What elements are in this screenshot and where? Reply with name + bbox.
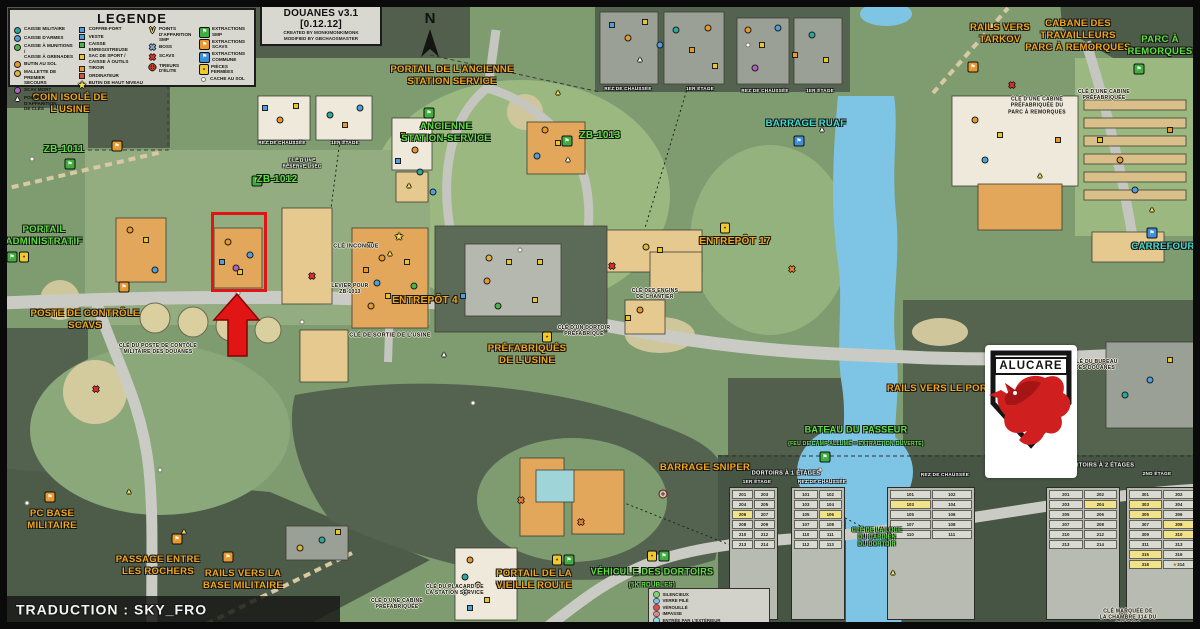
map-label-rails-base-militaire: RAILS VERS LA BASE MILITAIRE	[203, 568, 283, 592]
boss-icon: ✖	[149, 44, 156, 52]
map-label-rails-vers-port: RAILS VERS LE PORT	[887, 383, 993, 395]
dorm-floor-label: DORTOIRS À 1 ÉTAGES	[752, 471, 820, 478]
map-label-prefabriques-usine: PRÉFABRIQUÉS DE L'USINE	[488, 343, 567, 367]
map-label-cle-bureau-douanes: CLÉ DU BUREAU DES DOUANES	[1072, 359, 1117, 372]
map-title-box: DOUANES v3.1 [0.12.12] CREATED BY MONKIM…	[260, 4, 382, 46]
legend-item-label: POINTS D'APPARITION SMP	[159, 26, 196, 43]
map-label-zb-1011: ZB-1011	[44, 144, 84, 157]
map-label-portail-ancienne-station: PORTAIL DE L'ANCIENNE STATION SERVICE	[390, 64, 513, 88]
map-label-zb-1012: ZB-1012	[256, 174, 297, 187]
legend-item: CAISSE ENREGISTREUSE	[78, 41, 145, 52]
map-label-cle-dortoir-prefabrique: CLÉ D'UN DORTOIR PRÉFABRIQUÉ	[558, 325, 611, 338]
legend-item: ★BUTIN DE HAUT NIVEAU	[78, 80, 145, 90]
highlight-arrow-icon	[205, 290, 269, 360]
map-label-traduction: TRADUCTION : SKY_FRO	[16, 601, 207, 619]
pmc-spawn-icon: V	[150, 27, 155, 35]
legend-item: ⚑EXTRACTIONS SCAVS	[199, 39, 251, 51]
map-label-cabane-travailleurs: CABANE DES TRAVAILLEURS PARC À REMORQUES	[1017, 18, 1139, 54]
highlight-rectangle	[211, 212, 267, 292]
legend-item-label: SCAVS	[159, 53, 175, 59]
map-label-cle-poste-controle: CLÉ DU POSTE DE CONTÔLE MILITAIRE DES DO…	[119, 343, 197, 356]
map-label-cle-cabine-prefab-2: CLÉ D'UNE CABINE PRÉFABRIQUÉE	[371, 598, 423, 611]
map-label-rez-chaussee-m1: REZ DE CHAUSSÉE	[604, 86, 651, 92]
scav-x-icon: ✖	[149, 54, 156, 62]
legend-item-label: CAISSE À MUNITIONS / CAISSE À GRENADES	[24, 43, 75, 60]
legend-item-label: SAC DE SPORT / CAISSE À OUTILS	[89, 53, 129, 64]
map-label-passage-rochers: PASSAGE ENTRE LES ROCHERS	[116, 554, 201, 578]
alucare-logo: ALUCARE	[985, 345, 1077, 478]
legend-item-label: TIREURS D'ÉLITE	[159, 63, 196, 74]
legend-item: ⊕TIREURS D'ÉLITE	[148, 63, 196, 74]
legend-box: LEGENDE CAISSE MILITAIRECAISSE D'ARMESCA…	[8, 8, 256, 87]
c-g-circle-icon	[14, 44, 21, 51]
map-credit-modified: MODIFIED BY GBCHAOSMASTER	[263, 36, 379, 42]
sniper-crosshair-icon: ⊕	[149, 63, 157, 72]
s-y-square-icon	[79, 54, 85, 60]
map-label-entrepot-17: ENTREPÔT 17	[699, 236, 771, 249]
rooms-legend-label: SILENCIEUX	[663, 592, 689, 597]
legend-item-label: EXTRACTIONS SMP	[212, 26, 251, 37]
map-label-cle-inconnue: CLÉ INCONNUE	[333, 244, 378, 251]
dorm-floor-label: REZ DE CHAUSSÉE	[798, 479, 846, 485]
map-label-pc-base-militaire: PC BASE MILITAIRE	[27, 508, 77, 532]
rooms-legend-label: IMPASSE	[663, 611, 682, 616]
dorm-floor-label: 1ER ÉTAGE	[743, 479, 771, 485]
ground-cache-icon	[201, 77, 206, 82]
legend-item: BUTIN AU SOL	[13, 61, 75, 69]
map-label-ancienne-station-service: ANCIENNE STATION-SERVICE	[401, 121, 490, 145]
map-label-portail-administratif: PORTAIL ADMINISTRATIF	[5, 224, 82, 248]
legend-item: CAISSE D'ARMES	[13, 35, 75, 43]
dorm-floor-label: 2ND ÉTAGE	[1143, 471, 1172, 477]
rooms-legend-label: VÉROUILLÉ	[663, 605, 688, 610]
extraction-flag-icon: ⚑	[199, 27, 210, 38]
map-title: DOUANES v3.1 [0.12.12]	[263, 8, 379, 30]
legend-item: MALLETTE DE PREMIER SECOURS	[13, 69, 75, 86]
spawn-triangle-icon: ▲	[14, 96, 21, 103]
color-dot-icon	[653, 617, 660, 624]
extraction-flag-icon: ⚑	[199, 52, 210, 63]
map-label-parc-remorques: PARC À REMORQUES	[1128, 34, 1193, 58]
map-label-entrepot-4: ENTREPÔT 4	[392, 295, 458, 308]
map-label-barrage-ruaf: BARRAGE RUAF	[766, 118, 847, 130]
map-label-cle-placard-station: CLÉ DU PLACARD DE LA STATION SERVICE	[426, 584, 484, 597]
legend-item: CAISSE MILITAIRE	[13, 26, 75, 34]
customs-map: 2012032042052062072082092102122132141011…	[0, 0, 1200, 629]
dorm-floor-label: REZ DE CHAUSSÉE	[921, 472, 969, 478]
legend-item: TIROIR	[78, 65, 145, 72]
c-a-circle-icon	[14, 70, 21, 77]
map-label-carrefour: CARREFOUR	[1131, 241, 1194, 253]
legend-item-label: POINTS D'APPARITION DE CLÉS	[24, 95, 75, 112]
legend-item: SAC DE SPORT / CAISSE À OUTILS	[78, 53, 145, 64]
alucare-logo-text: ALUCARE	[994, 357, 1068, 375]
legend-item-label: CAISSE D'ARMES	[24, 35, 63, 41]
c-b-circle-icon	[14, 35, 21, 42]
legend-item: ORDINATEUR	[78, 73, 145, 80]
map-label-vehicule-dortoirs: VÉHICULE DES DORTOIRS	[591, 566, 714, 577]
map-label-premier-etage-m2: 1ER ÉTAGE	[806, 88, 834, 94]
map-label-levier-zb1013: LEVIER POUR ZB-1013	[331, 283, 368, 296]
map-label-cle-cabine-prefab-1: CLÉ D'UNE CABINE PRÉFABRIQUÉE	[1078, 89, 1130, 102]
high-value-loot-icon: ★	[78, 81, 86, 90]
map-label-barrage-sniper: BARRAGE SNIPER	[660, 462, 750, 474]
legend-item: ▲POINTS D'APPARITION DE CLÉS	[13, 95, 75, 112]
legend-item: ✖SCAVS	[148, 53, 196, 62]
rooms-legend-label: ENTRÉE PAR L'EXTÉRIEUR	[663, 618, 721, 623]
legend-item-label: BUTIN AU SOL	[24, 61, 57, 67]
rooms-legend-item: ENTRÉE PAR L'EXTÉRIEUR	[653, 617, 765, 624]
compass: N	[414, 10, 446, 62]
legend-item-label: TIROIR	[89, 65, 105, 71]
map-label-cle-cabine-parc: CLÉ D'UNE CABINE PRÉFABRIQUÉE DU PARC À …	[1008, 97, 1066, 116]
legend-item: SCAV MORT	[13, 87, 75, 95]
legend-item-label: EXTRACTIONS COMMUNE	[212, 51, 245, 62]
s-o-square-icon	[79, 66, 85, 72]
map-label-bateau-passeur-sub: (FEU DE CAMP ALLUMÉ = EXTRACTION OUVERTE…	[788, 441, 924, 447]
legend-columns: CAISSE MILITAIRECAISSE D'ARMESCAISSE À M…	[13, 26, 251, 112]
legend-item-label: EXTRACTIONS SCAVS	[212, 39, 251, 50]
legend-item-label: CAISSE MILITAIRE	[24, 26, 65, 32]
s-b-square-icon	[79, 34, 85, 40]
map-label-rez-chaussee-m2: REZ DE CHAUSSÉE	[741, 88, 788, 94]
s-r-square-icon	[79, 73, 85, 79]
legend-item: COFFRE-FORT	[78, 26, 145, 33]
compass-north-label: N	[414, 10, 446, 27]
map-label-cle-reserve-usec: CLÉ D'UNE RÉSERVE USEC	[283, 157, 322, 168]
rooms-legend-box: SILENCIEUXVERRE PILÉVÉROUILLÉIMPASSEENTR…	[648, 588, 770, 625]
legend-title: LEGENDE	[13, 11, 251, 26]
legend-item-label: ORDINATEUR	[89, 73, 119, 79]
map-label-bateau-passeur: BATEAU DU PASSEUR	[805, 424, 908, 435]
legend-item: CACHE AU SOL	[199, 76, 251, 82]
legend-item: VPOINTS D'APPARITION SMP	[148, 26, 196, 43]
legend-item: VESTE	[78, 34, 145, 41]
legend-item: CAISSE À MUNITIONS / CAISSE À GRENADES	[13, 43, 75, 60]
legend-item-label: COFFRE-FORT	[89, 26, 122, 32]
map-label-cle-engins-chantier: CLÉ DES ENGINS DE CHANTIER	[632, 288, 678, 301]
s-g-square-icon	[79, 42, 85, 48]
c-p-circle-icon	[14, 87, 21, 94]
legend-item-label: CACHE AU SOL	[210, 76, 245, 82]
rooms-legend-label: VERRE PILÉ	[663, 598, 689, 603]
map-label-premier-etage-m1: 1ER ÉTAGE	[686, 86, 714, 92]
map-label-rez-chaussee-tl: REZ DE CHAUSSÉE	[258, 140, 305, 146]
map-label-cle-sortie-usine: CLÉ DE SORTIE DE L'USINE	[349, 333, 431, 340]
s-b-square-icon	[79, 27, 85, 33]
legend-item-label: BUTIN DE HAUT NIVEAU	[89, 80, 143, 86]
extraction-flag-icon: ⚑	[199, 39, 210, 50]
legend-item-label: BOSS	[159, 44, 172, 50]
map-label-poste-controle-scavs: POSTE DE CONTRÔLE SCAVS	[30, 308, 139, 332]
map-label-premier-etage-tl: 1ER ÉTAGE	[331, 140, 359, 146]
map-label-portail-vieille-route: PORTAIL DE LA VIEILLE ROUTE	[496, 568, 572, 592]
map-label-cle-loge-gardien: CLÉ DE LA LOGE DU GARDIEN DU DORTOIR	[852, 528, 902, 549]
lock-icon: •	[199, 64, 209, 75]
map-label-cle-marquee-314: CLÉ MARQUÉE DE LA CHAMBRE 314 DU DORTOIR	[1092, 609, 1164, 628]
legend-item-label: VESTE	[89, 34, 104, 40]
legend-item-label: SCAV MORT	[24, 87, 51, 93]
legend-item-label: PIÈCES FERMÉES	[211, 64, 251, 75]
c-t-circle-icon	[14, 27, 21, 34]
legend-item: ⚑EXTRACTIONS SMP	[199, 26, 251, 38]
legend-item-label: CAISSE ENREGISTREUSE	[89, 41, 145, 52]
map-label-zb-1013: ZB-1013	[579, 130, 620, 143]
legend-item: •PIÈCES FERMÉES	[199, 64, 251, 76]
legend-item-label: MALLETTE DE PREMIER SECOURS	[24, 69, 75, 86]
c-o-circle-icon	[14, 61, 21, 68]
legend-item: ⚑EXTRACTIONS COMMUNE	[199, 51, 251, 63]
legend-item: ✖BOSS	[148, 44, 196, 53]
compass-arrow-icon	[414, 27, 446, 61]
